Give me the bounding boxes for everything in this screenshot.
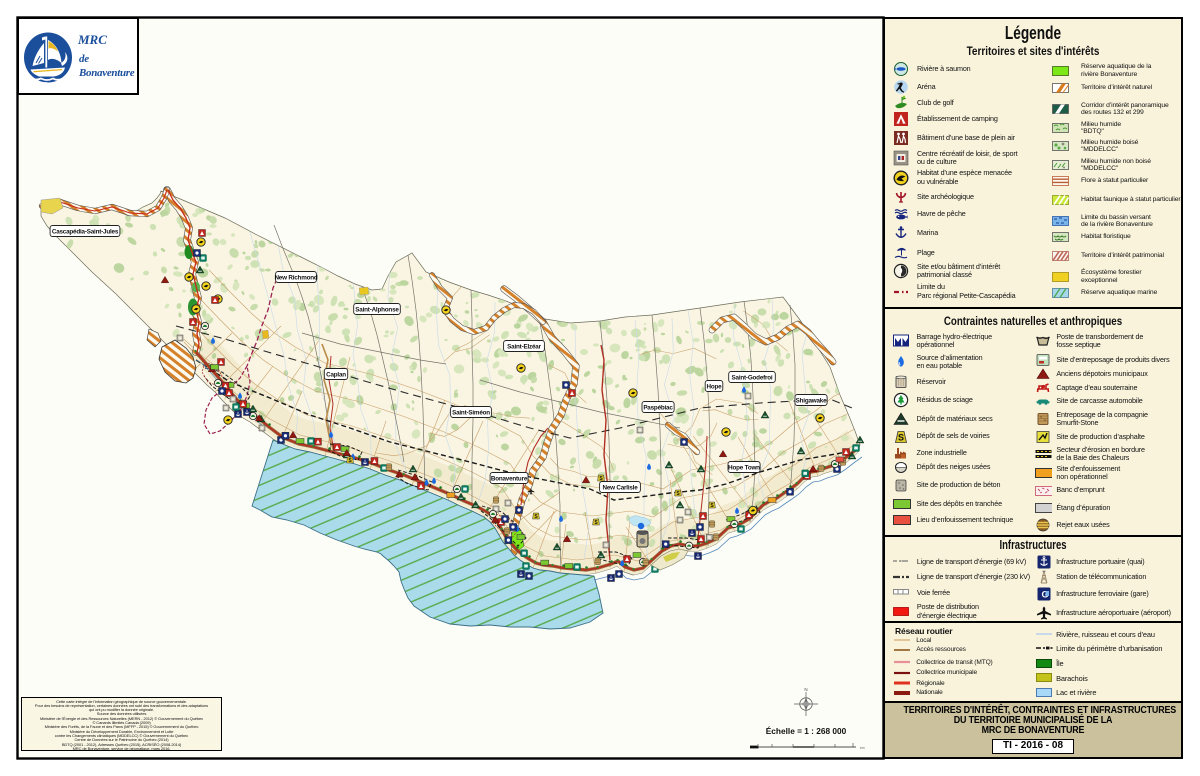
svg-text:New Richmond: New Richmond — [274, 274, 317, 281]
svg-text:Saint-Alphonse: Saint-Alphonse — [355, 306, 399, 313]
svg-text:Saint-Godefroi: Saint-Godefroi — [732, 374, 773, 381]
svg-text:km: km — [860, 746, 865, 750]
svg-text:Hope Town: Hope Town — [728, 464, 760, 471]
svg-text:Échelle = 1 : 268 000: Échelle = 1 : 268 000 — [766, 726, 847, 736]
svg-text:Hope: Hope — [707, 383, 723, 390]
svg-text:Bonaventure: Bonaventure — [491, 475, 528, 482]
svg-text:S: S — [898, 432, 904, 442]
svg-text:Shigawake: Shigawake — [796, 397, 827, 404]
svg-text:Caplan: Caplan — [326, 371, 346, 378]
svg-text:N: N — [804, 687, 807, 692]
svg-text:Saint-Siméon: Saint-Siméon — [452, 409, 490, 416]
svg-text:Cascapédia-Saint-Jules: Cascapédia-Saint-Jules — [52, 228, 119, 235]
svg-text:Paspébiac: Paspébiac — [643, 404, 673, 411]
svg-text:New Carlisle: New Carlisle — [602, 484, 638, 491]
svg-text:Saint-Elzéar: Saint-Elzéar — [507, 343, 541, 350]
